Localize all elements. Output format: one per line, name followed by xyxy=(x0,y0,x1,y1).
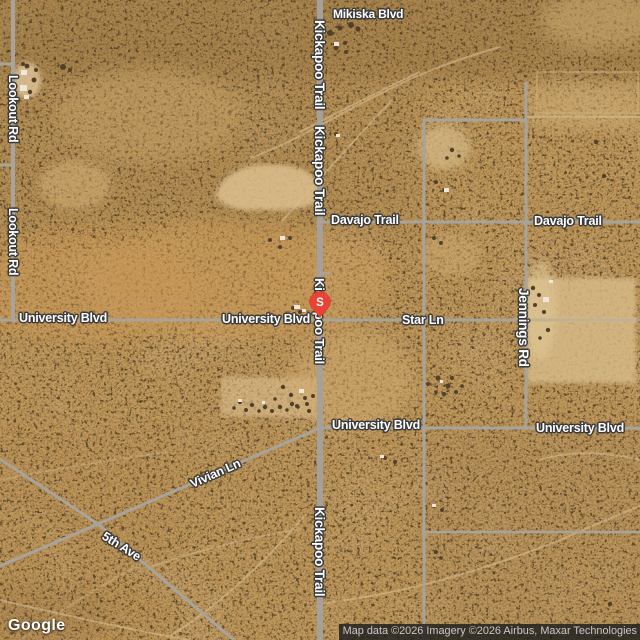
svg-text:S: S xyxy=(316,297,324,309)
